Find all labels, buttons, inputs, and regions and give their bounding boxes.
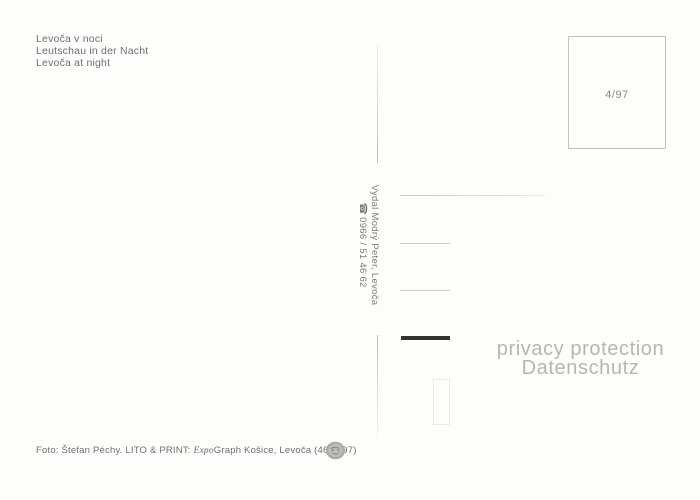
watermark-line-de: Datenschutz [478, 359, 683, 378]
dotted-marker-box [433, 379, 450, 425]
address-line-3 [400, 290, 450, 291]
divider-line-bottom [377, 335, 378, 440]
redaction-bar [401, 336, 450, 340]
caption-line-de: Leutschau in der Nacht [36, 45, 148, 57]
caption-line-sk: Levoča v noci [36, 33, 148, 45]
publisher-name: Vydal Modrý Peter, Levoča [368, 166, 380, 324]
credit-text: Foto: Štefan Péchy. LITO & PRINT: [36, 445, 193, 456]
address-line-2 [400, 243, 450, 244]
divider-line-top [377, 45, 378, 163]
caption-line-en: Levoča at night [36, 57, 148, 69]
phone-icon: ☎ [357, 202, 368, 215]
printer-emblem-icon [325, 441, 346, 460]
phone-number: 0966 / 51 46 62 [357, 217, 368, 288]
stamp-box-label: 4/97 [569, 89, 665, 101]
brand-name-italic: Expo [193, 446, 213, 456]
address-line-1 [400, 195, 545, 196]
postcard-back: Levoča v noci Leutschau in der Nacht Lev… [0, 0, 700, 500]
caption-block: Levoča v noci Leutschau in der Nacht Lev… [36, 33, 148, 69]
printer-credit: Foto: Štefan Péchy. LITO & PRINT: ExpoGr… [36, 445, 357, 456]
stamp-box: 4/97 [568, 36, 666, 149]
privacy-watermark: privacy protection Datenschutz [478, 340, 683, 378]
publisher-phone-line: ☎0966 / 51 46 62 [356, 166, 368, 324]
publisher-imprint: Vydal Modrý Peter, Levoča ☎0966 / 51 46 … [354, 166, 380, 324]
